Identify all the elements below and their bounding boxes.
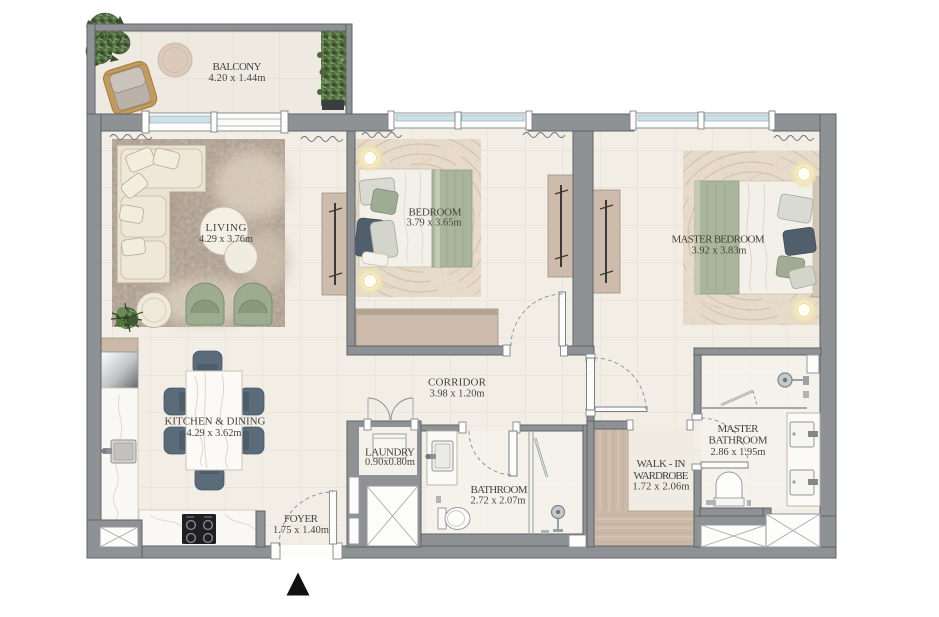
svg-text:4.29 x 3.76m: 4.29 x 3.76m <box>199 234 253 245</box>
svg-text:2.72 x 2.07m: 2.72 x 2.07m <box>471 496 526 507</box>
svg-text:BATHROOM: BATHROOM <box>471 484 528 496</box>
svg-text:BATHROOM: BATHROOM <box>709 435 768 447</box>
svg-text:BALCONY: BALCONY <box>213 61 262 73</box>
svg-text:2.86 x 1.95m: 2.86 x 1.95m <box>711 447 766 458</box>
svg-text:CORRIDOR: CORRIDOR <box>428 377 487 389</box>
svg-text:4.20 x 1.44m: 4.20 x 1.44m <box>209 73 266 84</box>
svg-text:KITCHEN & DINING: KITCHEN & DINING <box>165 416 266 428</box>
svg-text:1.72 x 2.06m: 1.72 x 2.06m <box>633 482 690 493</box>
svg-text:4.29 x 3.62m: 4.29 x 3.62m <box>187 428 242 439</box>
svg-text:LIVING: LIVING <box>206 222 247 234</box>
svg-text:MASTER BEDROOM: MASTER BEDROOM <box>672 234 765 246</box>
svg-text:3.79 x 3.65m: 3.79 x 3.65m <box>407 218 462 229</box>
svg-text:MASTER: MASTER <box>718 423 760 435</box>
svg-text:3.98 x 1.20m: 3.98 x 1.20m <box>430 389 485 400</box>
svg-text:WARDROBE: WARDROBE <box>634 470 689 482</box>
svg-text:FOYER: FOYER <box>284 513 319 525</box>
svg-text:WALK - IN: WALK - IN <box>637 458 686 470</box>
svg-text:3.92 x 3.83m: 3.92 x 3.83m <box>692 246 747 257</box>
svg-text:1.75 x 1.40m: 1.75 x 1.40m <box>273 525 329 536</box>
svg-text:0.90x0.80m: 0.90x0.80m <box>365 457 415 468</box>
